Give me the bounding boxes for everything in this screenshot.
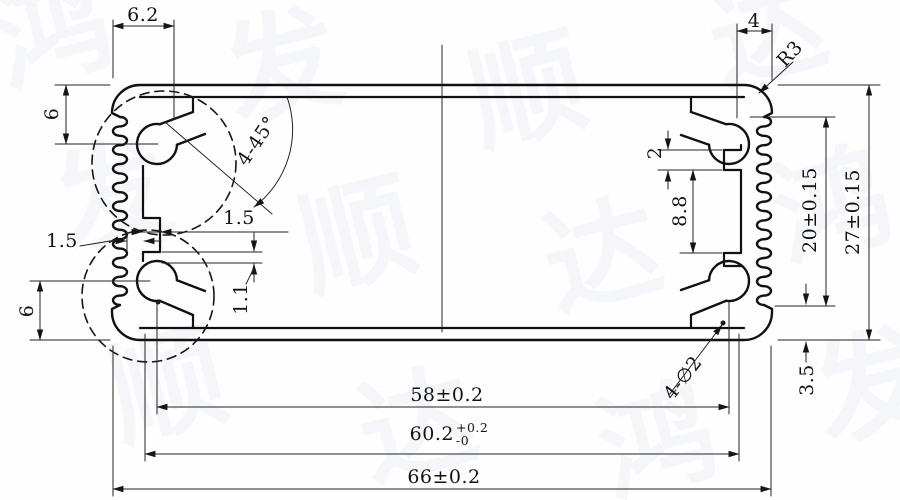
dim-wall-thickness: 1.5 <box>46 230 78 252</box>
dim-lines-boss-depth-bottom <box>30 281 150 340</box>
dim-lines-boss-offset-top-right <box>737 24 772 118</box>
dim-hole-pitch: 58±0.2 <box>410 384 483 406</box>
drawing-canvas: 鸿 发 顺 达 发 顺 达 鸿 顺 达 鸿 发 <box>0 0 900 500</box>
dim-lines-overall-height <box>778 85 880 340</box>
dim-boss-offset-top-left: 6.2 <box>127 4 159 26</box>
dim-groove-spacing: 8.8 <box>669 195 691 227</box>
dim-overall-width: 66±0.2 <box>407 466 480 488</box>
dim-rib-thickness: 1.5 <box>223 207 255 229</box>
dim-slot-width-tolerance: +0.2-0 <box>456 421 488 447</box>
dim-fin-zone-height: 20±0.15 <box>799 167 821 253</box>
dim-lines-groove-width <box>658 131 722 189</box>
dim-overall-height: 27±0.15 <box>842 169 864 255</box>
dim-boss-depth-top: 6 <box>41 108 63 121</box>
screw-boss-bottom-right <box>681 261 749 315</box>
dim-rib-gap: 1.1 <box>230 283 252 315</box>
dim-edge-margin: 3.5 <box>796 364 818 396</box>
dim-groove-width: 2 <box>644 147 666 160</box>
dim-boss-depth-bottom: 6 <box>16 305 38 318</box>
screw-boss-top-right <box>681 112 749 164</box>
dim-boss-offset-top-right: 4 <box>748 10 761 32</box>
detail-circle-bottom-left <box>82 230 214 362</box>
dim-slot-width: 60.2+0.2-0 <box>410 422 489 448</box>
screw-boss-top-left <box>137 112 205 164</box>
dim-slot-width-value: 60.2 <box>410 423 454 445</box>
dim-lines-wall-thickness <box>80 232 161 250</box>
screw-boss-bottom-left <box>137 261 205 315</box>
